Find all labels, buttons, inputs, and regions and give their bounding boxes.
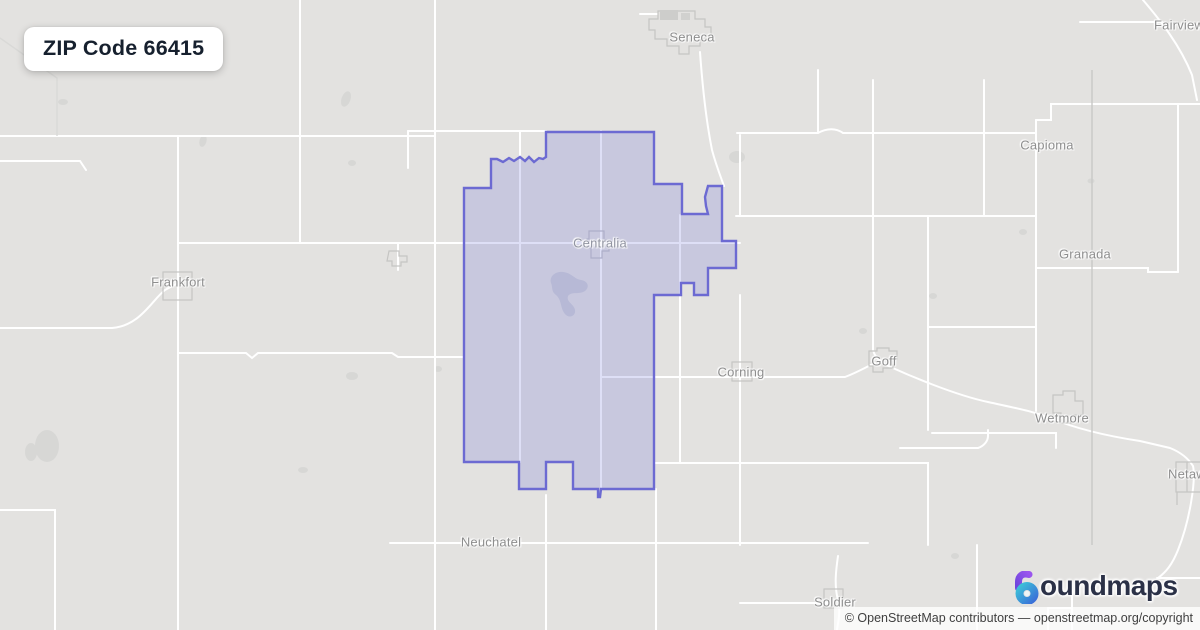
zip-code-badge: ZIP Code 66415 [24, 27, 223, 71]
osm-attribution[interactable]: © OpenStreetMap contributors — openstree… [834, 607, 1200, 630]
map-canvas[interactable] [0, 0, 1200, 630]
brand-logo: oundmaps [1014, 570, 1178, 604]
zip-code-badge-title: ZIP Code 66415 [43, 36, 204, 60]
boundmaps-wordmark: oundmaps [1040, 570, 1178, 602]
boundmaps-b-icon [1014, 571, 1039, 604]
map-widget: Seneca Fairview Capioma Granada Frankfor… [0, 0, 1200, 630]
